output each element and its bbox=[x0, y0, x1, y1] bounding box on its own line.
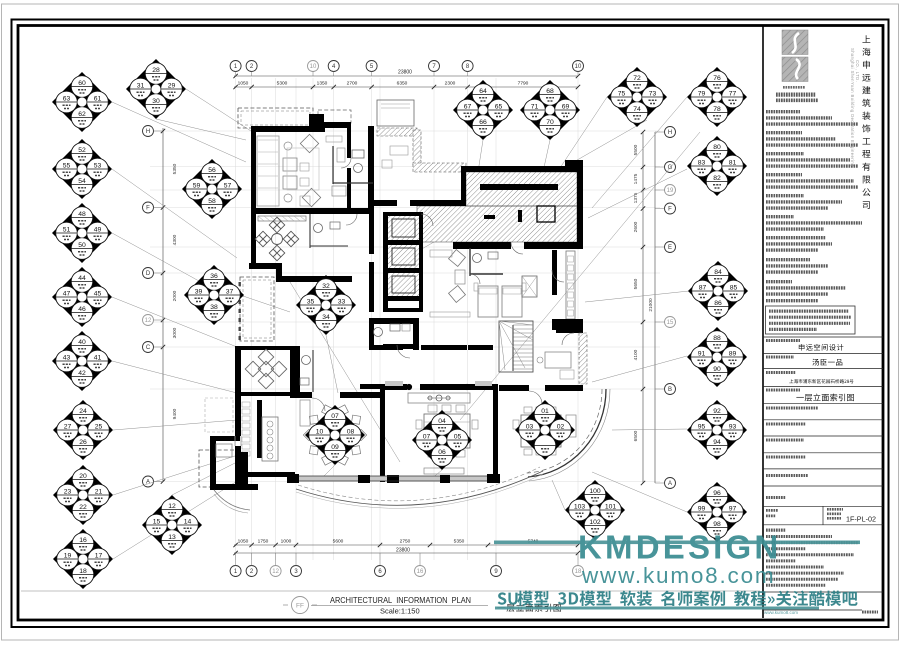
svg-text:59: 59 bbox=[193, 182, 201, 189]
svg-text:23800: 23800 bbox=[398, 70, 412, 76]
svg-text:15: 15 bbox=[153, 518, 161, 525]
svg-text:15: 15 bbox=[667, 320, 674, 326]
svg-text:B: B bbox=[668, 387, 672, 393]
svg-text:23: 23 bbox=[64, 488, 72, 495]
svg-text:85: 85 bbox=[730, 284, 738, 291]
svg-text:18: 18 bbox=[79, 568, 87, 575]
svg-text:D: D bbox=[146, 271, 151, 277]
svg-text:91: 91 bbox=[698, 350, 706, 357]
svg-text:16: 16 bbox=[417, 569, 424, 575]
svg-text:Shanghai ShenYuan Building Dec: Shanghai ShenYuan Building Decoration En… bbox=[850, 48, 855, 167]
svg-text:10: 10 bbox=[575, 64, 582, 70]
svg-text:47: 47 bbox=[63, 290, 71, 297]
svg-text:A: A bbox=[668, 481, 672, 487]
svg-text:53: 53 bbox=[94, 162, 102, 169]
svg-text:2600: 2600 bbox=[633, 221, 639, 232]
svg-text:16: 16 bbox=[79, 537, 87, 544]
svg-text:23800: 23800 bbox=[396, 548, 410, 554]
svg-text:58: 58 bbox=[208, 198, 216, 205]
svg-text:34: 34 bbox=[322, 314, 330, 321]
svg-text:12: 12 bbox=[145, 318, 152, 324]
svg-text:05: 05 bbox=[454, 433, 462, 440]
svg-text:60: 60 bbox=[78, 80, 86, 87]
svg-text:39: 39 bbox=[195, 288, 203, 295]
svg-text:82: 82 bbox=[713, 175, 721, 182]
svg-text:FF: FF bbox=[296, 603, 304, 610]
svg-text:61: 61 bbox=[94, 95, 102, 102]
svg-text:5350: 5350 bbox=[172, 163, 178, 174]
svg-text:83: 83 bbox=[698, 159, 706, 166]
svg-text:G: G bbox=[668, 165, 673, 171]
svg-text:1000: 1000 bbox=[281, 539, 292, 545]
svg-text:08: 08 bbox=[347, 428, 355, 435]
svg-text:www.kumo8.com: www.kumo8.com bbox=[764, 610, 798, 615]
svg-text:74: 74 bbox=[633, 106, 641, 113]
svg-text:55: 55 bbox=[63, 162, 71, 169]
svg-text:97: 97 bbox=[729, 505, 737, 512]
svg-text:18: 18 bbox=[575, 569, 582, 575]
svg-text:72: 72 bbox=[633, 75, 641, 82]
svg-text:H: H bbox=[146, 129, 150, 135]
svg-text:63: 63 bbox=[63, 95, 71, 102]
svg-text:50: 50 bbox=[78, 242, 86, 249]
svg-text:CO., LTD.: CO., LTD. bbox=[855, 60, 860, 82]
svg-text:E: E bbox=[668, 245, 672, 251]
svg-text:31: 31 bbox=[137, 82, 145, 89]
svg-text:01: 01 bbox=[541, 408, 549, 415]
svg-text:84: 84 bbox=[714, 269, 722, 276]
svg-text:62: 62 bbox=[78, 111, 86, 118]
svg-text:46: 46 bbox=[78, 306, 86, 313]
svg-text:6350: 6350 bbox=[397, 81, 408, 87]
svg-text:2700: 2700 bbox=[347, 81, 358, 87]
svg-text:52: 52 bbox=[78, 147, 86, 154]
svg-text:87: 87 bbox=[699, 284, 707, 291]
svg-text:03: 03 bbox=[526, 423, 534, 430]
svg-text:56: 56 bbox=[208, 167, 216, 174]
svg-text:07: 07 bbox=[423, 433, 431, 440]
svg-text:1F-PL-02: 1F-PL-02 bbox=[846, 515, 876, 524]
svg-text:96: 96 bbox=[713, 490, 721, 497]
svg-text:1050: 1050 bbox=[238, 539, 249, 545]
svg-text:24: 24 bbox=[79, 408, 87, 415]
svg-text:38: 38 bbox=[210, 304, 218, 311]
svg-text:68: 68 bbox=[546, 88, 554, 95]
svg-text:44: 44 bbox=[78, 275, 86, 282]
svg-text:Scale:1:150: Scale:1:150 bbox=[380, 607, 420, 616]
svg-text:78: 78 bbox=[713, 106, 721, 113]
svg-text:28: 28 bbox=[152, 67, 160, 74]
svg-text:5500: 5500 bbox=[633, 144, 639, 155]
svg-text:4100: 4100 bbox=[633, 349, 639, 360]
svg-text:95: 95 bbox=[698, 423, 706, 430]
svg-text:81: 81 bbox=[729, 159, 737, 166]
svg-text:51: 51 bbox=[63, 226, 71, 233]
svg-text:103: 103 bbox=[574, 503, 586, 510]
svg-text:92: 92 bbox=[713, 408, 721, 415]
svg-text:30: 30 bbox=[152, 98, 160, 105]
svg-text:64: 64 bbox=[479, 88, 487, 95]
svg-text:ARCHITECTURAL INFORMATION PL: ARCHITECTURAL INFORMATION PLAN bbox=[330, 596, 471, 605]
svg-text:19: 19 bbox=[64, 552, 72, 559]
svg-text:69: 69 bbox=[562, 103, 570, 110]
svg-text:5350: 5350 bbox=[454, 539, 465, 545]
svg-text:C: C bbox=[146, 345, 151, 351]
svg-text:49: 49 bbox=[94, 226, 102, 233]
svg-text:26: 26 bbox=[79, 439, 87, 446]
svg-text:65: 65 bbox=[495, 103, 503, 110]
svg-text:36: 36 bbox=[210, 273, 218, 280]
svg-text:43: 43 bbox=[63, 354, 71, 361]
svg-text:41: 41 bbox=[94, 354, 102, 361]
svg-text:88: 88 bbox=[713, 335, 721, 342]
svg-text:33: 33 bbox=[338, 298, 346, 305]
svg-text:100: 100 bbox=[589, 488, 601, 495]
svg-text:71: 71 bbox=[531, 103, 539, 110]
svg-text:09: 09 bbox=[331, 444, 339, 451]
svg-text:12: 12 bbox=[272, 569, 279, 575]
svg-text:02: 02 bbox=[557, 423, 565, 430]
svg-text:77: 77 bbox=[729, 90, 737, 97]
svg-text:73: 73 bbox=[649, 90, 657, 97]
svg-text:40: 40 bbox=[78, 339, 86, 346]
svg-text:5650: 5650 bbox=[633, 278, 639, 289]
svg-text:27: 27 bbox=[64, 423, 72, 430]
svg-text:48: 48 bbox=[78, 211, 86, 218]
svg-text:9400: 9400 bbox=[172, 408, 178, 419]
svg-text:F: F bbox=[146, 206, 150, 212]
svg-text:5600: 5600 bbox=[333, 539, 344, 545]
svg-text:2300: 2300 bbox=[445, 81, 456, 87]
svg-text:80: 80 bbox=[713, 144, 721, 151]
svg-text:04: 04 bbox=[438, 418, 446, 425]
svg-text:25: 25 bbox=[95, 423, 103, 430]
svg-text:93: 93 bbox=[729, 423, 737, 430]
svg-text:76: 76 bbox=[713, 75, 721, 82]
svg-text:54: 54 bbox=[78, 178, 86, 185]
svg-text:22: 22 bbox=[79, 504, 87, 511]
svg-text:17: 17 bbox=[95, 552, 103, 559]
svg-text:3000: 3000 bbox=[172, 327, 178, 338]
svg-text:1350: 1350 bbox=[317, 81, 328, 87]
svg-text:20: 20 bbox=[79, 473, 87, 480]
svg-text:66: 66 bbox=[479, 119, 487, 126]
svg-text:101: 101 bbox=[605, 503, 617, 510]
svg-text:1475: 1475 bbox=[633, 173, 639, 184]
svg-text:94: 94 bbox=[713, 439, 721, 446]
svg-text:102: 102 bbox=[589, 519, 601, 526]
svg-text:21: 21 bbox=[95, 488, 103, 495]
svg-text:10: 10 bbox=[310, 64, 317, 70]
svg-text:www.kumo8.com: www.kumo8.com bbox=[581, 563, 775, 588]
svg-text:67: 67 bbox=[464, 103, 472, 110]
svg-text:A: A bbox=[146, 480, 150, 486]
svg-text:2750: 2750 bbox=[400, 539, 411, 545]
svg-text:5300: 5300 bbox=[277, 81, 288, 87]
svg-text:57: 57 bbox=[224, 182, 232, 189]
svg-text:1750: 1750 bbox=[258, 539, 269, 545]
svg-text:07: 07 bbox=[331, 413, 339, 420]
svg-text:42: 42 bbox=[78, 370, 86, 377]
svg-text:F: F bbox=[668, 207, 672, 213]
svg-text:86: 86 bbox=[714, 300, 722, 307]
svg-text:89: 89 bbox=[729, 350, 737, 357]
svg-text:KMDESIGN: KMDESIGN bbox=[578, 529, 781, 566]
svg-text:2000: 2000 bbox=[172, 290, 178, 301]
svg-text:H: H bbox=[668, 130, 672, 136]
svg-text:99: 99 bbox=[698, 505, 706, 512]
svg-text:7790: 7790 bbox=[518, 81, 529, 87]
svg-text:32: 32 bbox=[322, 283, 330, 290]
svg-text:35: 35 bbox=[307, 298, 315, 305]
svg-text:21000: 21000 bbox=[648, 298, 654, 312]
svg-text:06: 06 bbox=[438, 449, 446, 456]
svg-text:70: 70 bbox=[546, 119, 554, 126]
svg-text:4300: 4300 bbox=[172, 234, 178, 245]
svg-text:1050: 1050 bbox=[238, 81, 249, 87]
svg-text:79: 79 bbox=[698, 90, 706, 97]
svg-text:90: 90 bbox=[713, 366, 721, 373]
svg-text:37: 37 bbox=[226, 288, 234, 295]
svg-text:29: 29 bbox=[168, 82, 176, 89]
svg-text:75: 75 bbox=[618, 90, 626, 97]
svg-text:98: 98 bbox=[713, 521, 721, 528]
svg-text:6500: 6500 bbox=[633, 430, 639, 441]
svg-text:10: 10 bbox=[316, 428, 324, 435]
svg-text:12: 12 bbox=[168, 503, 176, 510]
svg-text:19: 19 bbox=[667, 188, 674, 194]
svg-text:45: 45 bbox=[94, 290, 102, 297]
svg-text:14: 14 bbox=[184, 518, 192, 525]
svg-text:13: 13 bbox=[168, 534, 176, 541]
